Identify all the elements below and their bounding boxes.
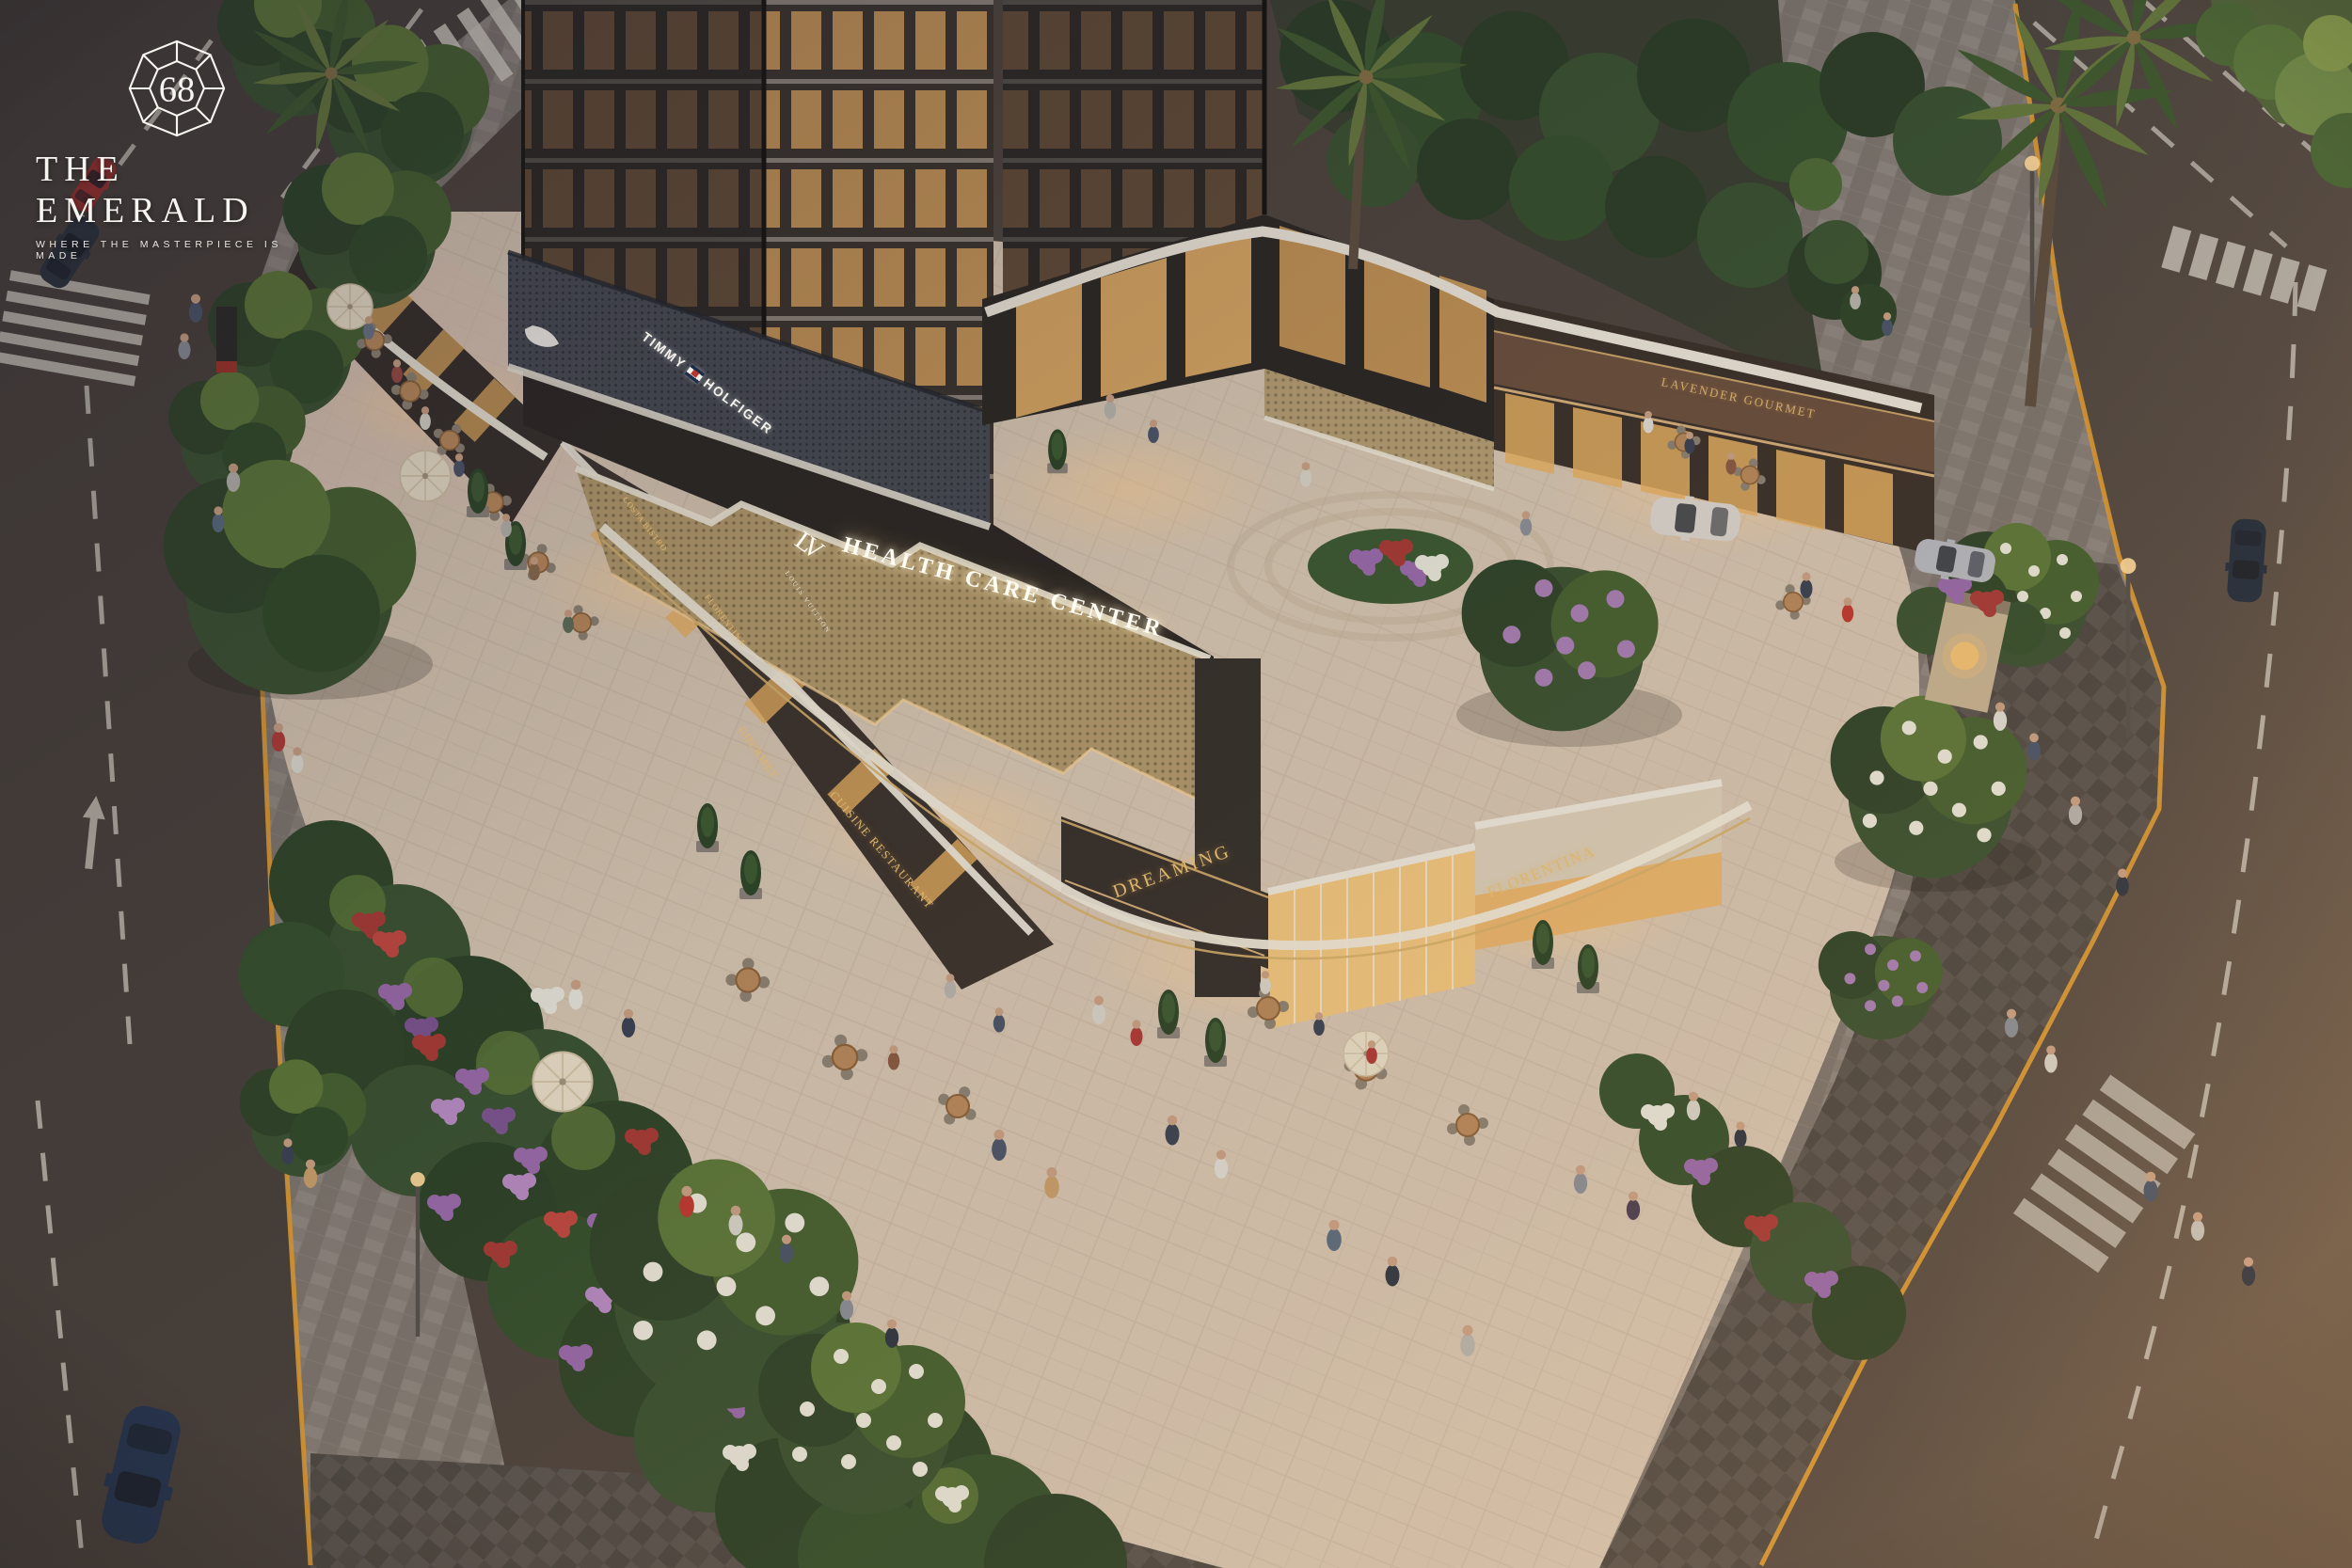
render-canvas <box>0 0 2352 1568</box>
brand-name: THE EMERALD <box>36 149 318 231</box>
aerial-architecture-render: 68 THE EMERALD WHERE THE MASTERPIECE IS … <box>0 0 2352 1568</box>
vignette-overlay <box>0 0 2352 1568</box>
brand-tagline: WHERE THE MASTERPIECE IS MADE <box>36 239 318 261</box>
emerald-gem-icon: 68 <box>126 38 228 139</box>
project-logo: 68 THE EMERALD WHERE THE MASTERPIECE IS … <box>36 38 318 261</box>
logo-number: 68 <box>159 71 196 110</box>
